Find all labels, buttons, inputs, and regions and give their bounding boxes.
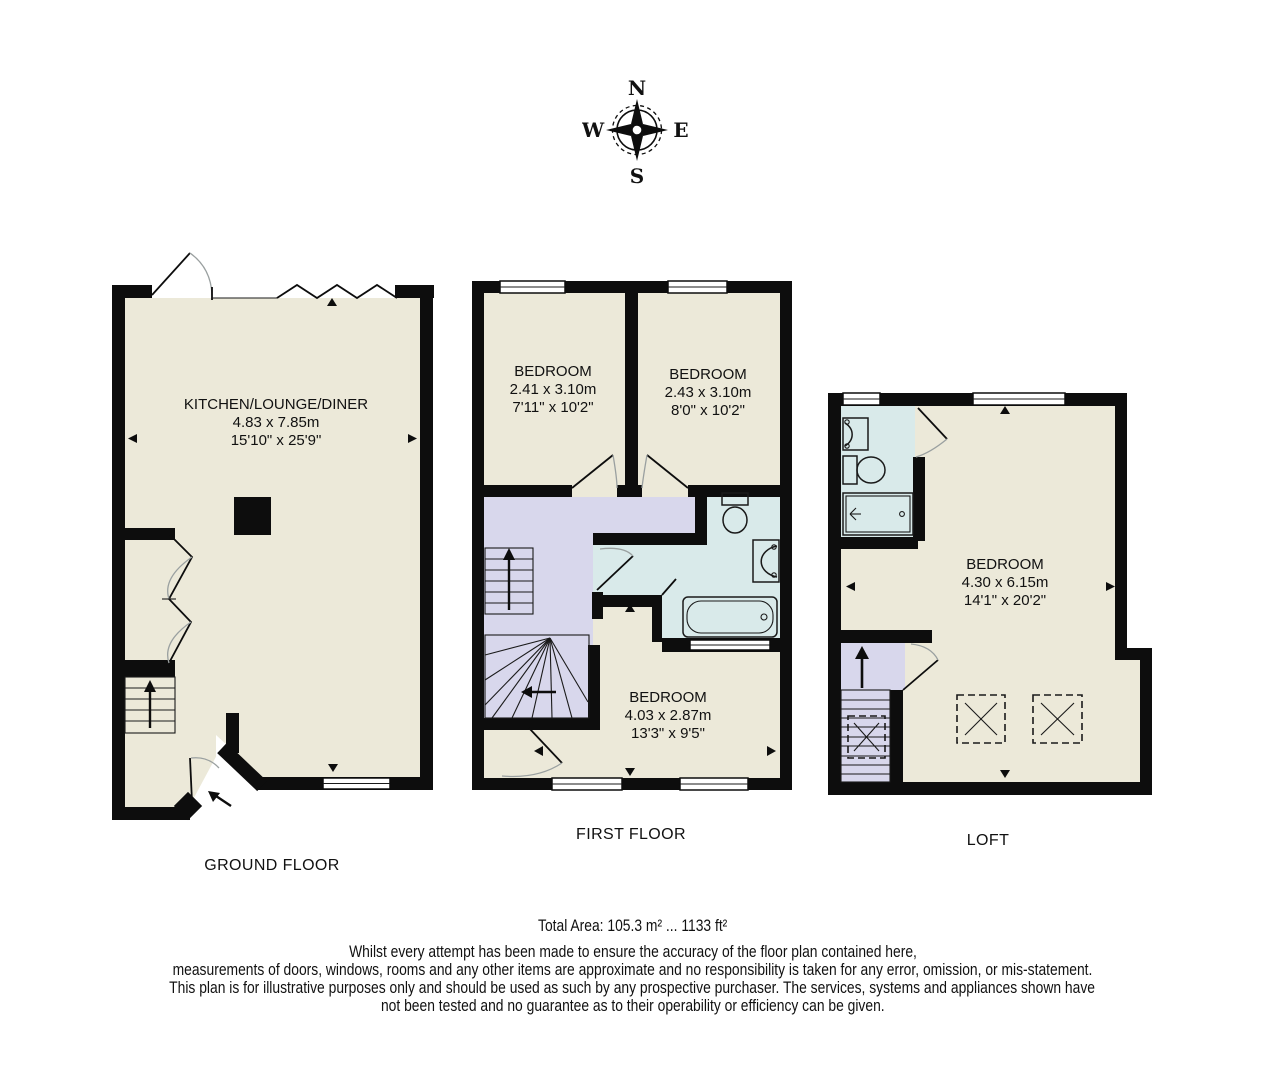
- room-label-kitchen-lounge-diner: KITCHEN/LOUNGE/DINER 4.83 x 7.85m 15'10"…: [184, 396, 368, 450]
- window: [323, 778, 390, 789]
- floorplan-page: N W E S: [0, 0, 1265, 1080]
- room-size-imperial: 15'10" x 25'9": [184, 432, 368, 450]
- room-name: BEDROOM: [962, 556, 1049, 574]
- disclaimer-line: not been tested and no guarantee as to t…: [381, 998, 885, 1015]
- room-size-imperial: 13'3" x 9'5": [625, 725, 712, 743]
- chimney-block: [234, 497, 271, 535]
- footer-notes: Total Area: 105.3 m² ... 1133 ft² Whilst…: [0, 918, 1265, 1016]
- room-size-metric: 4.83 x 7.85m: [184, 414, 368, 432]
- room-size-imperial: 7'11" x 10'2": [510, 399, 597, 417]
- floor-label-ground: GROUND FLOOR: [204, 857, 339, 875]
- room-name: BEDROOM: [510, 363, 597, 381]
- compass-south-label: S: [630, 164, 644, 188]
- floor-label-first: FIRST FLOOR: [576, 826, 686, 844]
- room-label-bedroom-3: BEDROOM 4.03 x 2.87m 13'3" x 9'5": [625, 689, 712, 743]
- room-size-metric: 4.03 x 2.87m: [625, 707, 712, 725]
- first-floor-plan: BEDROOM 2.41 x 3.10m 7'11" x 10'2" BEDRO…: [472, 240, 792, 880]
- first-floor-drawing: [472, 240, 792, 880]
- room-name: BEDROOM: [625, 689, 712, 707]
- room-size-imperial: 8'0" x 10'2": [665, 402, 752, 420]
- compass-north-label: N: [628, 76, 646, 100]
- room-label-bedroom-1: BEDROOM 2.41 x 3.10m 7'11" x 10'2": [510, 363, 597, 417]
- disclaimer-line: measurements of doors, windows, rooms an…: [173, 962, 1093, 979]
- compass-west-label: W: [582, 118, 605, 142]
- total-area-text: Total Area: 105.3 m² ... 1133 ft²: [538, 918, 727, 935]
- disclaimer-line: Whilst every attempt has been made to en…: [349, 944, 917, 961]
- room-name: KITCHEN/LOUNGE/DINER: [184, 396, 368, 414]
- ground-floor-plan: KITCHEN/LOUNGE/DINER 4.83 x 7.85m 15'10"…: [112, 240, 434, 880]
- patio-door: [152, 253, 277, 300]
- room-name: BEDROOM: [665, 366, 752, 384]
- floor-label-loft: LOFT: [967, 832, 1010, 850]
- room-size-metric: 2.43 x 3.10m: [665, 384, 752, 402]
- compass-rose-icon: N W E S: [582, 72, 692, 190]
- room-label-bedroom-2: BEDROOM 2.43 x 3.10m 8'0" x 10'2": [665, 366, 752, 420]
- compass-east-label: E: [673, 118, 688, 142]
- disclaimer-line: This plan is for illustrative purposes o…: [170, 980, 1096, 997]
- loft-plan: BEDROOM 4.30 x 6.15m 14'1" x 20'2" LOFT: [828, 240, 1153, 880]
- room-label-loft-bedroom: BEDROOM 4.30 x 6.15m 14'1" x 20'2": [962, 556, 1049, 610]
- room-size-metric: 4.30 x 6.15m: [962, 574, 1049, 592]
- room-size-imperial: 14'1" x 20'2": [962, 592, 1049, 610]
- folding-door-zigzag: [277, 285, 397, 298]
- room-size-metric: 2.41 x 3.10m: [510, 381, 597, 399]
- ground-floor-drawing: [112, 240, 434, 880]
